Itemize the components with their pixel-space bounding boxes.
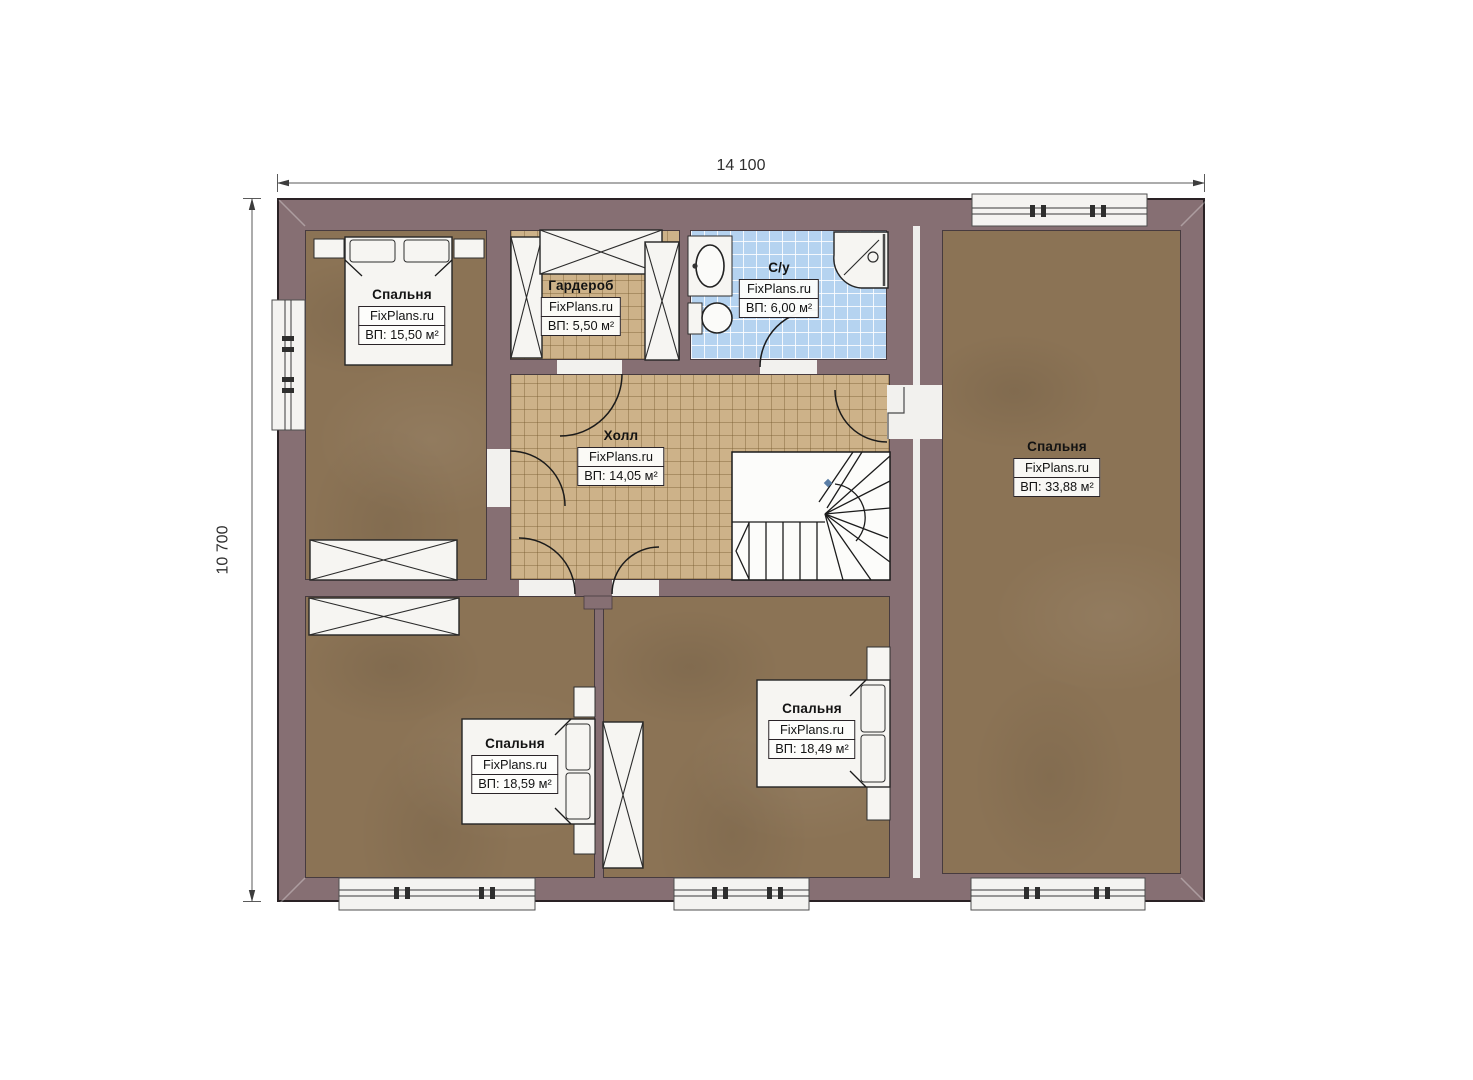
door-arc-bedroom-right	[835, 390, 887, 442]
pillow	[566, 773, 590, 819]
door-arc-wardrobe	[560, 374, 622, 436]
window-bottom-left	[339, 878, 535, 910]
area-value: ВП: 18,49 м²	[768, 739, 855, 760]
toilet	[688, 303, 732, 334]
room-label-bedroom-top-left: Спальня FixPlans.ru ВП: 15,50 м²	[358, 287, 445, 345]
wardrobe-closet-right	[645, 242, 679, 360]
brand-watermark: FixPlans.ru	[577, 447, 664, 468]
room-name: Спальня	[358, 287, 445, 303]
door-opening-bedroom-right	[887, 385, 942, 439]
pillow	[861, 685, 885, 732]
staircase	[732, 452, 890, 580]
brand-watermark: FixPlans.ru	[768, 720, 855, 741]
brand-watermark: FixPlans.ru	[358, 306, 445, 327]
door-arc-bathroom	[760, 310, 817, 367]
room-name: Спальня	[768, 701, 855, 717]
room-label-bedroom-bottom-left: Спальня FixPlans.ru ВП: 18,59 м²	[471, 736, 558, 794]
dimension-height-label: 10 700	[208, 198, 238, 902]
brand-watermark: FixPlans.ru	[541, 297, 621, 318]
area-value: ВП: 14,05 м²	[577, 466, 664, 487]
dimension-width-line	[277, 172, 1205, 194]
room-name: Спальня	[1013, 439, 1100, 455]
wardrobe-cabinet-tall	[603, 722, 643, 868]
brand-watermark: FixPlans.ru	[1013, 458, 1100, 479]
wall-pier	[584, 596, 612, 609]
room-label-bedroom-bottom-middle: Спальня FixPlans.ru ВП: 18,49 м²	[768, 701, 855, 759]
closet-bedroom-bottom-left	[309, 598, 459, 635]
room-name: Холл	[577, 428, 664, 444]
double-wall-cavity	[913, 226, 920, 878]
window-bottom-middle	[674, 878, 809, 910]
sink	[688, 236, 732, 296]
brand-watermark: FixPlans.ru	[471, 755, 558, 776]
area-value: ВП: 5,50 м²	[541, 316, 621, 337]
door-opening-bathroom	[760, 360, 817, 374]
floor-plan-page: 14 100 10 700	[0, 0, 1473, 1080]
dimension-height-line	[241, 198, 263, 902]
nightstand	[867, 787, 890, 820]
door-arc-bedroom-top-left	[510, 451, 565, 506]
room-label-bedroom-right: Спальня FixPlans.ru ВП: 33,88 м²	[1013, 439, 1100, 497]
nightstand	[574, 824, 595, 854]
nightstand	[867, 647, 890, 680]
wardrobe-closet-top	[540, 230, 662, 274]
door-opening-bedroom-top-left	[487, 449, 510, 507]
nightstand	[574, 687, 595, 717]
faucet	[692, 263, 697, 268]
brand-watermark: FixPlans.ru	[739, 279, 819, 300]
door-opening-wardrobe	[557, 360, 622, 374]
room-label-wardrobe: Гардероб FixPlans.ru ВП: 5,50 м²	[541, 278, 621, 336]
pillow	[861, 735, 885, 782]
door-opening-bedroom-bottom-middle	[612, 580, 659, 596]
window-bottom-right	[971, 878, 1145, 910]
closet-bedroom-top-left	[310, 540, 457, 580]
nightstand	[314, 239, 344, 258]
nightstand	[454, 239, 484, 258]
door-opening-bedroom-bottom-left	[519, 580, 575, 596]
pillow	[404, 240, 449, 262]
room-name: Гардероб	[541, 278, 621, 294]
pillow	[566, 724, 590, 770]
area-value: ВП: 18,59 м²	[471, 774, 558, 795]
room-label-bathroom: С/у FixPlans.ru ВП: 6,00 м²	[739, 260, 819, 318]
wardrobe-closet-left	[511, 237, 542, 358]
room-name: С/у	[739, 260, 819, 276]
room-label-hall: Холл FixPlans.ru ВП: 14,05 м²	[577, 428, 664, 486]
window-left	[272, 300, 305, 430]
room-name: Спальня	[471, 736, 558, 752]
area-value: ВП: 33,88 м²	[1013, 477, 1100, 498]
shower-cabin	[834, 232, 888, 288]
dimension-width-label: 14 100	[277, 157, 1205, 175]
window-top	[972, 194, 1147, 226]
floor-plan: Спальня FixPlans.ru ВП: 15,50 м² Гардеро…	[277, 198, 1205, 902]
area-value: ВП: 15,50 м²	[358, 325, 445, 346]
area-value: ВП: 6,00 м²	[739, 298, 819, 319]
pillow	[350, 240, 395, 262]
